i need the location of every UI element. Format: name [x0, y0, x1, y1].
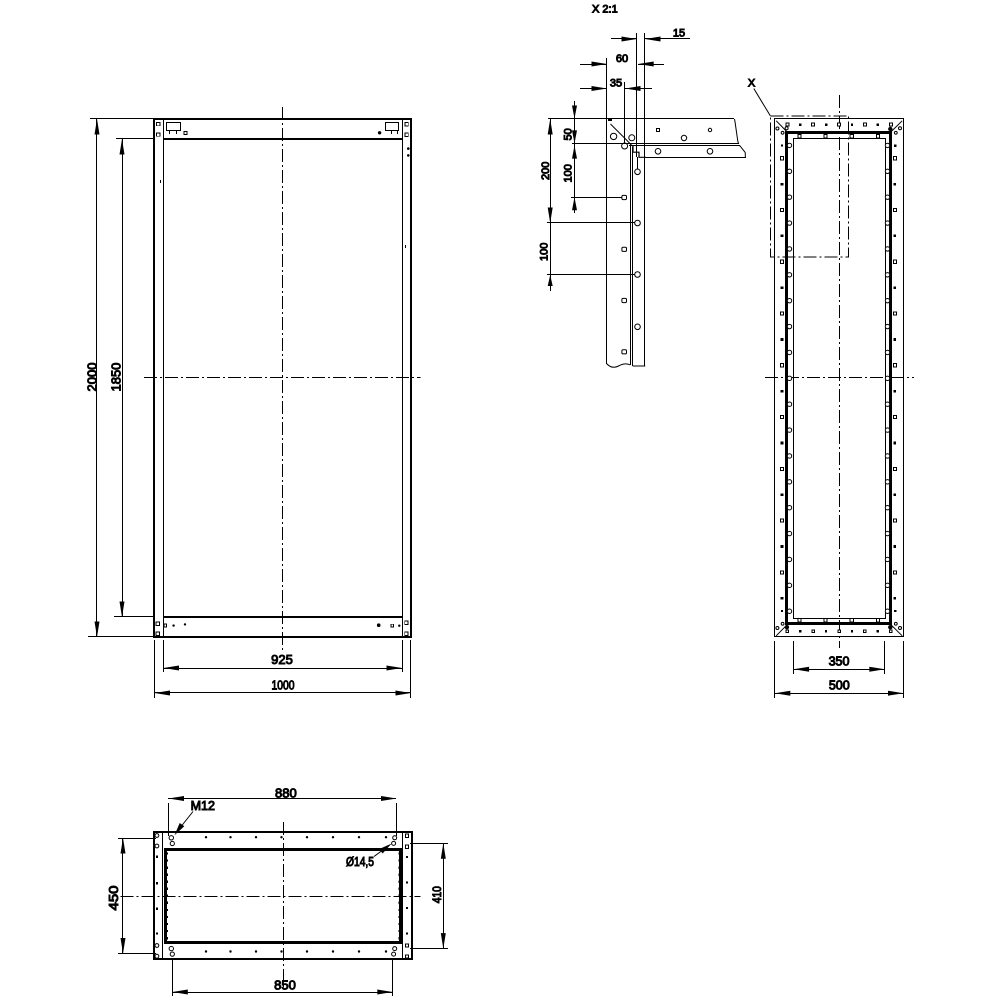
svg-text:850: 850: [274, 978, 296, 993]
svg-text:2000: 2000: [85, 363, 100, 392]
svg-text:X: X: [748, 78, 756, 90]
svg-text:1850: 1850: [109, 363, 124, 392]
svg-text:100: 100: [539, 243, 551, 261]
svg-text:880: 880: [275, 785, 297, 800]
svg-text:Ø14,5: Ø14,5: [346, 855, 374, 869]
svg-text:50: 50: [563, 128, 575, 140]
svg-text:350: 350: [829, 654, 850, 668]
svg-text:1000: 1000: [272, 679, 295, 693]
svg-text:410: 410: [432, 886, 444, 903]
svg-text:M12: M12: [191, 799, 215, 813]
svg-text:35: 35: [610, 78, 622, 90]
svg-text:200: 200: [540, 162, 552, 180]
svg-text:925: 925: [271, 652, 293, 667]
svg-text:15: 15: [673, 28, 685, 40]
svg-text:X 2:1: X 2:1: [592, 4, 618, 16]
svg-text:500: 500: [829, 679, 850, 693]
svg-text:60: 60: [616, 53, 628, 65]
svg-text:100: 100: [562, 164, 574, 182]
svg-text:450: 450: [106, 886, 121, 911]
